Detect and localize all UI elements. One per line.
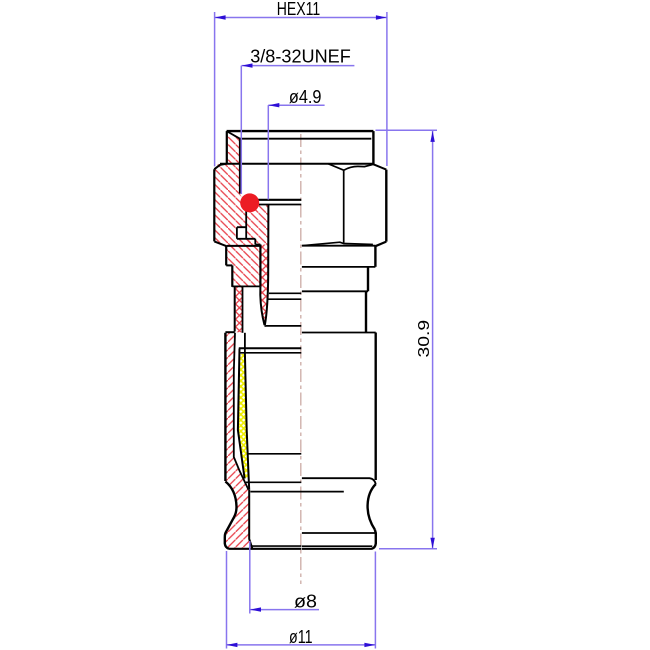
svg-text:HEX11: HEX11 <box>277 0 321 19</box>
svg-text:ø11: ø11 <box>289 626 313 647</box>
svg-text:3/8-32UNEF: 3/8-32UNEF <box>250 45 351 66</box>
svg-text:ø8: ø8 <box>294 591 317 612</box>
svg-text:ø4.9: ø4.9 <box>289 86 322 107</box>
svg-text:30.9: 30.9 <box>416 320 433 358</box>
